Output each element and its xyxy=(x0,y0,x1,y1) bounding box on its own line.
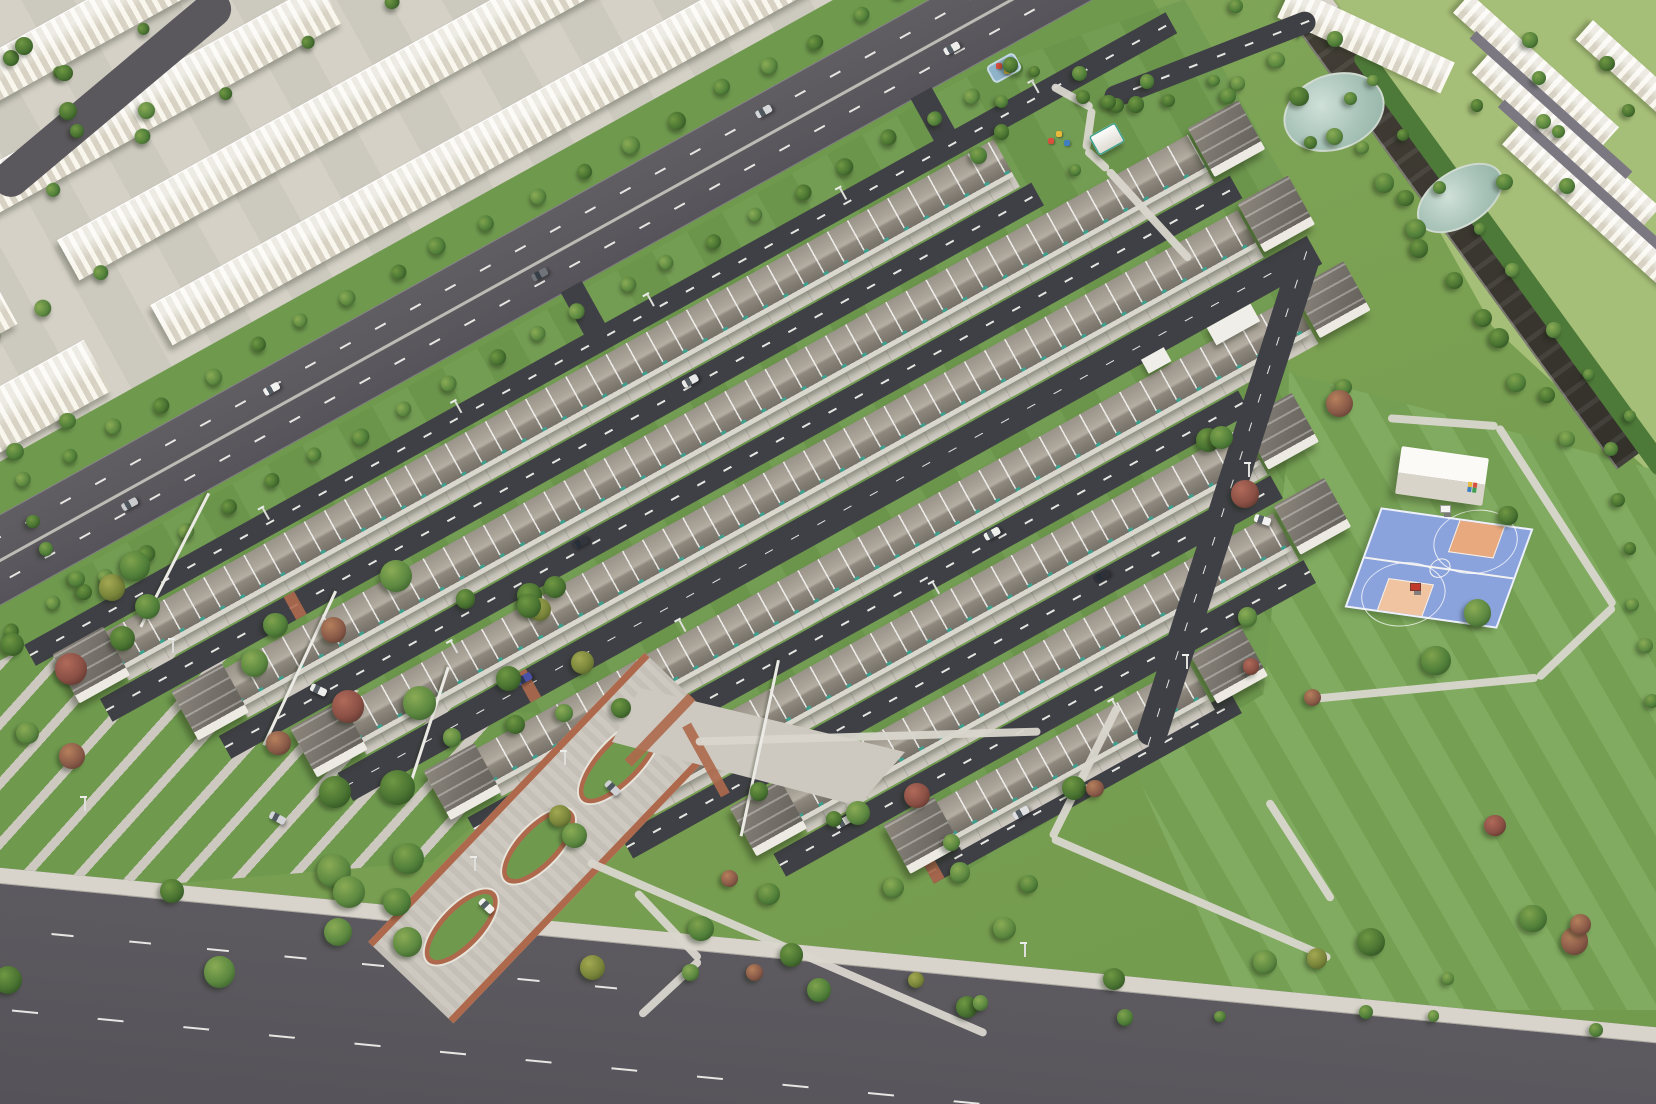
tree xyxy=(1442,972,1455,985)
street-light-arm xyxy=(1020,942,1027,944)
street-light xyxy=(1020,942,1030,958)
tree xyxy=(1344,92,1357,105)
tree xyxy=(1471,99,1484,112)
tree xyxy=(59,743,85,769)
street-light-pole xyxy=(1032,81,1040,93)
tree xyxy=(1505,263,1520,278)
tree xyxy=(99,574,125,600)
tree xyxy=(1599,56,1615,72)
street-light-pole xyxy=(678,620,686,632)
tree xyxy=(1375,173,1395,193)
street-light-arm xyxy=(1182,654,1189,656)
tree xyxy=(1546,322,1561,337)
tree xyxy=(1507,373,1527,393)
street-light-arm xyxy=(560,750,567,752)
tree xyxy=(332,690,364,722)
tree xyxy=(6,443,23,460)
tree xyxy=(380,770,415,805)
tree xyxy=(1496,174,1512,190)
tree xyxy=(263,613,287,637)
street-light xyxy=(80,796,90,812)
tree xyxy=(1210,426,1233,449)
tree xyxy=(319,776,351,808)
tree xyxy=(1356,141,1369,154)
tree xyxy=(750,782,769,801)
tree xyxy=(1327,31,1343,47)
tree xyxy=(321,617,346,642)
tree xyxy=(826,811,842,827)
tree xyxy=(1101,95,1115,109)
tree xyxy=(1484,815,1506,837)
tree xyxy=(950,862,971,883)
tree xyxy=(1326,128,1343,145)
tree xyxy=(383,888,411,916)
aerial-site-render xyxy=(0,0,1656,1104)
play-equipment xyxy=(1064,140,1070,146)
street-light-pole xyxy=(932,582,940,594)
tree xyxy=(1128,96,1145,113)
tree xyxy=(1611,493,1625,507)
tree xyxy=(1231,480,1258,507)
street-light-pole xyxy=(84,798,86,811)
street-light-pole xyxy=(1024,944,1026,957)
tree xyxy=(1421,646,1450,675)
street-light-pole xyxy=(454,401,462,413)
street-light-pole xyxy=(839,188,847,200)
tree xyxy=(393,927,422,956)
tree xyxy=(721,870,738,887)
tree xyxy=(241,649,268,676)
tree xyxy=(1162,94,1175,107)
street-light-pole xyxy=(172,640,174,653)
tree xyxy=(1522,32,1537,47)
street-light-arm xyxy=(1244,462,1251,464)
tree xyxy=(456,589,475,608)
street-light-pole xyxy=(262,508,270,520)
tree xyxy=(1086,780,1104,798)
street-light xyxy=(168,638,178,654)
tree xyxy=(1062,776,1086,800)
tree xyxy=(1428,1010,1440,1022)
tree xyxy=(1304,689,1322,707)
street-light-pole xyxy=(450,641,458,653)
street-light xyxy=(1182,654,1192,670)
tree xyxy=(380,560,412,592)
tree xyxy=(1214,1011,1225,1022)
street-light-pole xyxy=(564,752,566,765)
tree xyxy=(1638,638,1653,653)
play-equipment xyxy=(996,63,1002,69)
tree xyxy=(544,576,566,598)
tree xyxy=(1243,658,1260,675)
tree xyxy=(994,124,1009,139)
tree xyxy=(904,783,930,809)
tree xyxy=(1397,129,1409,141)
tree xyxy=(1552,125,1565,138)
street-light-pole xyxy=(647,294,655,306)
tree xyxy=(135,594,160,619)
pavilion-sign-panel xyxy=(1467,487,1472,492)
tree xyxy=(993,917,1016,940)
tree xyxy=(1359,1005,1373,1019)
tree xyxy=(1268,52,1285,69)
tree xyxy=(59,413,75,429)
tree xyxy=(1474,309,1492,327)
tree xyxy=(26,515,40,529)
tree xyxy=(883,877,904,898)
street-light-pole xyxy=(1248,464,1250,477)
tree xyxy=(908,972,924,988)
tree xyxy=(1519,905,1547,933)
basketball-hoop xyxy=(1410,583,1421,591)
tree xyxy=(120,551,149,580)
tree xyxy=(39,542,53,556)
play-equipment xyxy=(1056,131,1062,137)
tree xyxy=(56,65,73,82)
tree xyxy=(1220,88,1236,104)
tree xyxy=(1624,542,1637,555)
tree xyxy=(1307,948,1327,968)
tree xyxy=(562,823,587,848)
street-light-pole xyxy=(474,858,476,871)
tree xyxy=(580,955,605,980)
tree xyxy=(1589,1023,1603,1037)
tree xyxy=(1208,75,1219,86)
tree xyxy=(1410,239,1428,257)
tree xyxy=(55,653,87,685)
street-light-pole xyxy=(1186,656,1188,669)
basketball-hoop xyxy=(1440,505,1451,513)
street-light-arm xyxy=(470,856,477,858)
tree xyxy=(943,834,960,851)
tree xyxy=(1446,272,1463,289)
tree xyxy=(1238,607,1257,626)
tree xyxy=(1645,694,1656,708)
tree xyxy=(59,102,77,120)
tree xyxy=(1229,0,1243,13)
street-light-arm xyxy=(80,796,87,798)
tree xyxy=(1289,87,1309,107)
street-light-arm xyxy=(168,638,175,640)
tree xyxy=(443,728,462,747)
tree xyxy=(1406,219,1426,239)
tree xyxy=(611,698,631,718)
street-light xyxy=(1244,462,1254,478)
street-light xyxy=(470,856,480,872)
tree xyxy=(1140,74,1154,88)
tree xyxy=(1559,431,1575,447)
tree xyxy=(1539,387,1556,404)
tree xyxy=(1570,914,1591,935)
tree xyxy=(571,651,594,674)
tree xyxy=(1604,442,1618,456)
tree xyxy=(393,843,424,874)
tree xyxy=(682,964,699,981)
tree xyxy=(1076,90,1090,104)
tree xyxy=(1489,328,1509,348)
tree xyxy=(16,722,39,745)
tree xyxy=(1003,57,1019,73)
tree xyxy=(1367,75,1378,86)
pavilion-sign-panel xyxy=(1472,487,1477,492)
tree xyxy=(517,594,540,617)
street-light xyxy=(560,750,570,766)
play-equipment xyxy=(1048,138,1054,144)
tree xyxy=(1583,369,1594,380)
tree xyxy=(758,883,780,905)
median-island xyxy=(413,878,510,976)
tree xyxy=(1397,190,1414,207)
tree xyxy=(1433,181,1446,194)
tree xyxy=(780,943,804,967)
tree xyxy=(1020,875,1039,894)
tree xyxy=(688,916,713,941)
tree xyxy=(970,147,987,164)
tree xyxy=(1072,66,1088,82)
tree xyxy=(68,571,85,588)
tree xyxy=(1498,506,1518,526)
